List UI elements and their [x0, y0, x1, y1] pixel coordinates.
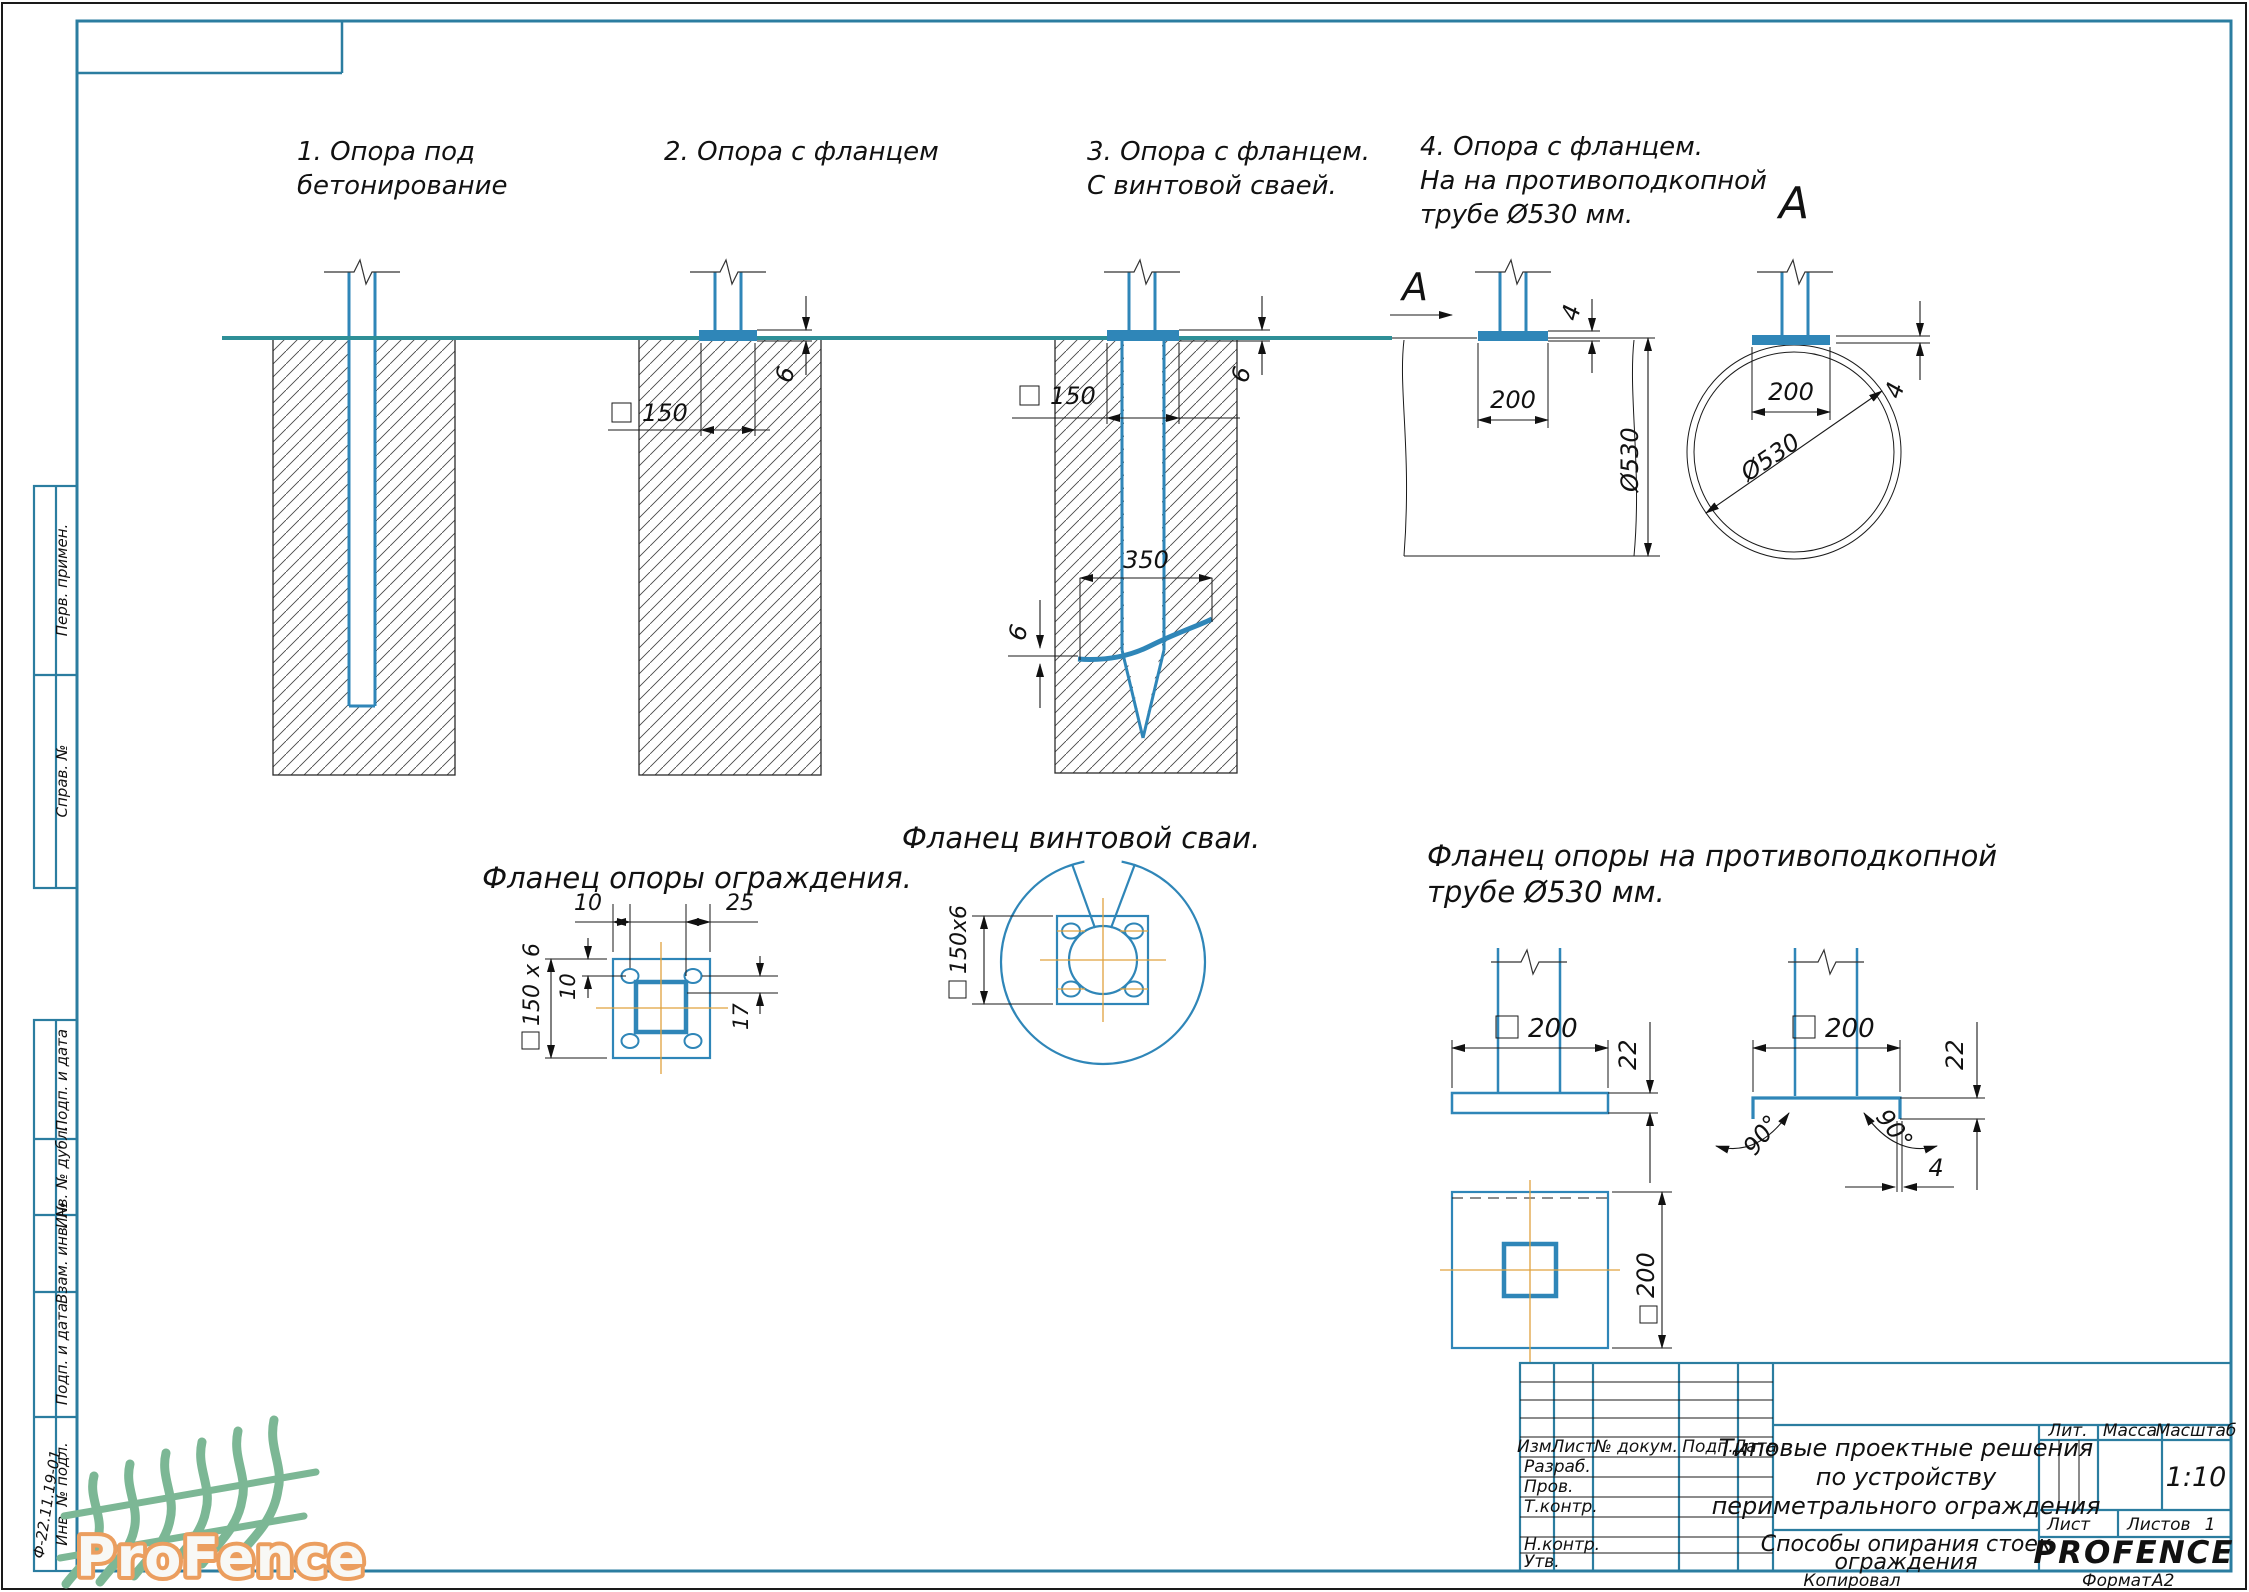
option2-flange: [699, 330, 757, 341]
section-flange: [1752, 335, 1830, 345]
drawing-sheet: Перв. примен. Справ. № Подп. и дата Инв.…: [0, 0, 2249, 1592]
col-ndocum: № докум.: [1593, 1437, 1678, 1457]
dim-hole-tube-offset: 17: [729, 1003, 753, 1030]
row-utv: Утв.: [1524, 1552, 1560, 1572]
doc-title-line3: периметрального ограждения: [1712, 1492, 2101, 1520]
sheet-edge: [2, 3, 2246, 1589]
label-sheets: Листов: [2126, 1515, 2191, 1535]
option3-label-line1: 3. Опора с фланцем.: [1087, 137, 1370, 167]
option1-label-line1: 1. Опора под: [297, 137, 475, 167]
option4-label-line2: На на противоподкопной: [1420, 166, 1767, 196]
doc-title-line1: Типовые проектные решения: [1719, 1434, 2093, 1462]
dim-flange4-width: 200: [1490, 386, 1536, 414]
dim-plate-thickness-bent: 22: [1941, 1039, 1969, 1070]
option4-flange: [1478, 331, 1548, 341]
format-label: Формат: [2082, 1571, 2152, 1591]
brand-logo-text: PROFENCE: [2033, 1535, 2234, 1571]
doc-title-line2: по устройству: [1816, 1463, 1997, 1491]
option4-label-line3: трубе Ø530 мм.: [1420, 200, 1633, 230]
sidebar-item-sprav-n: Справ. №: [53, 745, 71, 818]
dim-post2-size: 150: [642, 399, 688, 427]
dim-hole-edge-offset: 10: [574, 891, 602, 916]
dim-post3-size: 150: [1050, 382, 1096, 410]
dim-hole-spacing: 25: [726, 891, 754, 916]
row-tkontr: Т.контр.: [1524, 1497, 1598, 1517]
kopiroval-label: Копировал: [1803, 1571, 1900, 1591]
dim-blade-diameter: 350: [1123, 546, 1169, 574]
section-view-label: A: [1776, 178, 1809, 229]
dim-plan-plate-size: 200: [1632, 1252, 1660, 1298]
row-prov: Пров.: [1524, 1477, 1573, 1497]
pipe-flange-title-line1: Фланец опоры на противоподкопной: [1427, 839, 1997, 873]
col-list: Лист: [1550, 1437, 1595, 1457]
screwpile-flange-title: Фланец винтовой сваи.: [902, 821, 1260, 855]
option3-label-line2: С винтовой сваей.: [1087, 171, 1337, 201]
sidebar-item-perv-primen: Перв. примен.: [53, 524, 71, 637]
row-razrab: Разраб.: [1524, 1457, 1591, 1477]
dim-lip-thickness: 4: [1928, 1154, 1943, 1182]
dim-section-flange-width: 200: [1768, 378, 1814, 406]
format-value: А2: [2151, 1571, 2174, 1591]
dim-screwpile-plate-size: 150x6: [947, 905, 972, 974]
section-arrow-label: A: [1399, 265, 1428, 309]
label-lit: Лит.: [2047, 1421, 2087, 1441]
dim-pipe-diameter: Ø530: [1616, 427, 1644, 493]
sidebar-item-podp-data-1: Подп. и дата: [53, 1029, 71, 1131]
dim-pipeflange-width-flat: 200: [1528, 1014, 1578, 1044]
option2-label: 2. Опора с фланцем: [664, 137, 939, 167]
option1-label-line2: бетонирование: [297, 171, 508, 201]
label-mass: Масса: [2103, 1421, 2157, 1441]
dim-plate-size: 150 x 6: [520, 943, 545, 1026]
label-sheet: Лист: [2046, 1515, 2091, 1535]
sheets-value: 1: [2205, 1515, 2216, 1535]
option4-label-line1: 4. Опора с фланцем.: [1420, 132, 1703, 162]
dim-pipeflange-width-bent: 200: [1825, 1014, 1875, 1044]
dim-plate-thickness-flat: 22: [1614, 1039, 1642, 1070]
scale-value: 1:10: [2166, 1462, 2227, 1493]
dim-hole-top-offset: 10: [556, 973, 580, 1000]
sidebar-item-vzam-inv: Взам. инв. №: [53, 1202, 71, 1304]
pipe-flange-title-line2: трубе Ø530 мм.: [1427, 875, 1665, 909]
option3-flange: [1107, 330, 1179, 341]
fence-flange-title: Фланец опоры ограждения.: [482, 861, 912, 895]
label-scale: Масштаб: [2156, 1421, 2237, 1441]
sidebar-item-podp-data-2: Подп. и дата: [53, 1303, 71, 1405]
cad-canvas: Перв. примен. Справ. № Подп. и дата Инв.…: [0, 0, 2249, 1592]
profence-logo-text: ProFence: [76, 1526, 366, 1589]
